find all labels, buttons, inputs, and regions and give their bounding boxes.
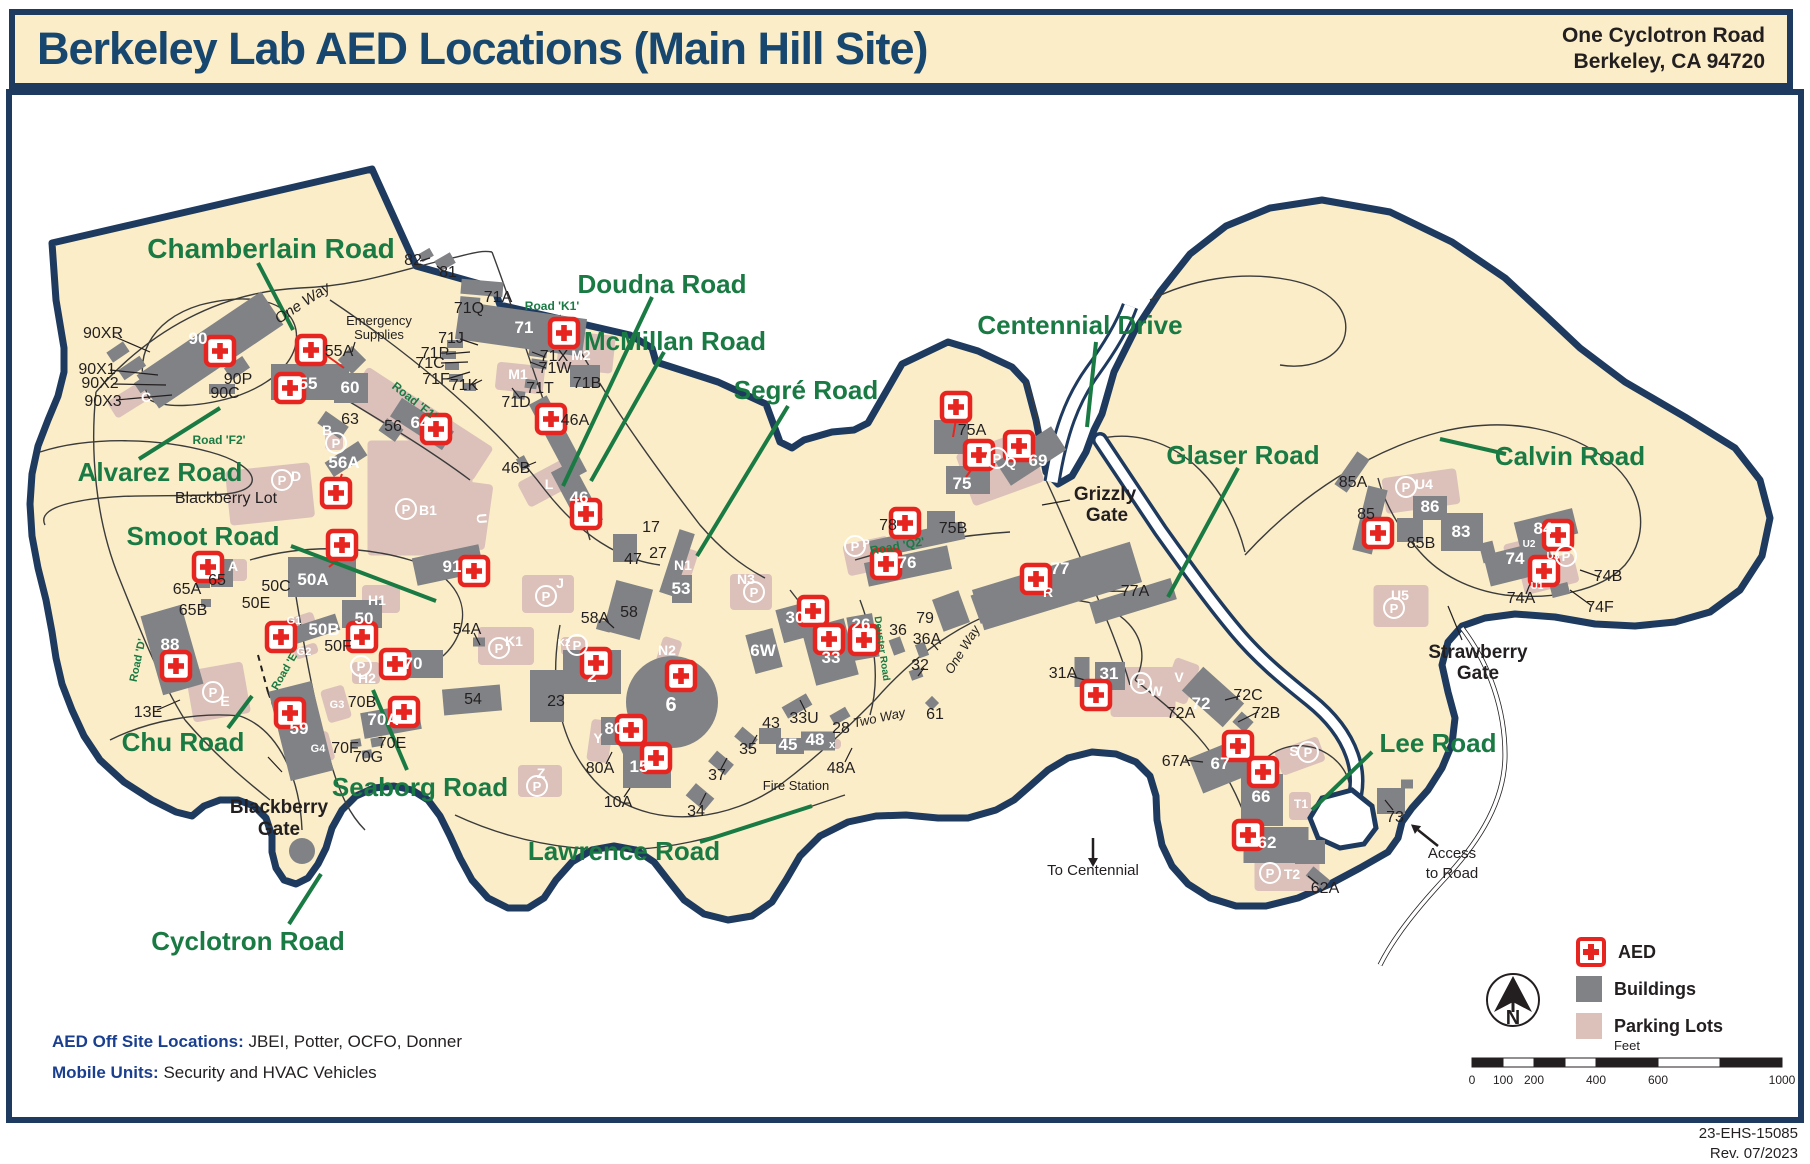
building-swatch-icon (1576, 976, 1602, 1002)
footnotes: AED Off Site Locations: JBEI, Potter, OC… (52, 1032, 462, 1094)
building-number: 50 (355, 609, 374, 628)
building-number: 50A (297, 570, 328, 589)
building (1401, 780, 1413, 789)
legend-item-parking: Parking Lots (1576, 1012, 1723, 1040)
building-number: 74 (1506, 549, 1525, 568)
aed-marker (162, 652, 190, 680)
building-number: 23 (547, 693, 565, 710)
scale-bar-segment (1534, 1058, 1565, 1067)
building-number: 31A (1049, 665, 1078, 682)
parking-lot-label: N1 (674, 557, 692, 573)
building-number: 59 (290, 719, 309, 738)
building-number: 72B (1252, 705, 1280, 722)
legend-item-buildings: Buildings (1576, 975, 1723, 1003)
map-annotation: Emergency (346, 313, 412, 328)
building-number: 2 (587, 667, 596, 686)
building-number: 46A (561, 412, 590, 429)
road-name-label: Alvarez Road (78, 457, 243, 487)
building-number: 6 (665, 694, 676, 716)
parking-p-icon: P (1402, 480, 1411, 495)
building-number: 69 (1029, 451, 1048, 470)
aed-map-page: 90556064714656A9150A50B5088597070A261580… (0, 0, 1810, 1164)
aed-marker (322, 479, 350, 507)
mobile-units-label: Mobile Units: (52, 1063, 159, 1082)
parking-lot-label: H1 (368, 592, 386, 608)
document-info: 23-EHS-15085 Rev. 07/2023 (1699, 1124, 1798, 1163)
map-annotation: to Road (1426, 865, 1479, 882)
building-number: 50C (261, 578, 290, 595)
page-title: Berkeley Lab AED Locations (Main Hill Si… (37, 23, 928, 75)
building-number: 32 (911, 657, 929, 674)
mobile-units-note: Mobile Units: Security and HVAC Vehicles (52, 1063, 462, 1083)
building-number: 85 (1357, 506, 1375, 523)
parking-p-icon: P (1562, 549, 1571, 564)
parking-p-icon: P (1266, 866, 1275, 881)
building-number: 67A (1162, 753, 1191, 770)
scale-bar-segment (1720, 1058, 1782, 1067)
building-number: 34 (687, 803, 705, 820)
parking-lot-label: K1 (505, 633, 523, 649)
building-number: 60 (341, 378, 360, 397)
gate-label: Strawberry (1428, 642, 1528, 663)
offsite-note-text: JBEI, Potter, OCFO, Donner (244, 1032, 462, 1051)
doc-revision: Rev. 07/2023 (1699, 1144, 1798, 1164)
building-number: 71 (515, 318, 534, 337)
parking-p-icon: P (495, 641, 504, 656)
parking-lot-label: B (322, 422, 332, 438)
parking-lot-label: S (1289, 743, 1298, 759)
building-number: 71F (422, 371, 450, 388)
road-name-label: Calvin Road (1495, 441, 1645, 471)
parking-p-icon: P (209, 685, 218, 700)
aed-marker (550, 319, 578, 347)
parking-lot-label: U3 (1547, 551, 1560, 562)
building-number: 91 (443, 557, 462, 576)
parking-p-icon: P (1304, 745, 1313, 760)
building-number: 70G (353, 749, 383, 766)
gate-label: Grizzly (1074, 484, 1137, 505)
scale-bar-segment (1565, 1058, 1596, 1067)
aed-icon (1576, 937, 1606, 967)
building-number: 90X2 (81, 375, 118, 392)
building-number: 71W (539, 360, 573, 377)
scale-tick-label: 200 (1524, 1073, 1544, 1087)
building-number: 74A (1507, 590, 1536, 607)
building-number: 65 (208, 572, 226, 589)
parking-lot-label: G4 (311, 743, 327, 755)
parking-lot-label: R (1043, 584, 1053, 600)
road-name-label: Lawrence Road (528, 836, 720, 866)
aed-marker (206, 337, 234, 365)
building-number: 13E (134, 704, 162, 721)
gate-label: Blackberry (230, 797, 329, 818)
building-number: 83 (1452, 522, 1471, 541)
building-number: 70 (404, 654, 423, 673)
building-number: 63 (341, 411, 359, 428)
building-number: 56 (384, 418, 402, 435)
building-number: 80 (605, 719, 624, 738)
parking-p-icon: P (573, 638, 582, 653)
parking-p-icon: P (1137, 676, 1146, 691)
parking-lot-label: J (556, 575, 564, 591)
parking-lot-label: N3 (737, 571, 755, 587)
building-number: 70B (348, 694, 376, 711)
building-number: 71T (526, 380, 554, 397)
building-number: 90XR (83, 325, 123, 342)
parking-lot-label: T2 (1284, 866, 1301, 882)
building-number: 50E (242, 595, 270, 612)
scale-tick-label: 1000 (1769, 1073, 1796, 1087)
building-number: 65A (173, 581, 202, 598)
building-number: 54 (464, 691, 482, 708)
scale-tick-label: 600 (1648, 1073, 1668, 1087)
road-name-label: Chamberlain Road (147, 233, 394, 264)
building-number: 82 (404, 252, 422, 269)
parking-lot-label: L (545, 476, 554, 492)
road-name-label: Cyclotron Road (151, 926, 345, 956)
parking-lot-label: U2 (1523, 539, 1536, 550)
building-number: 46 (570, 488, 589, 507)
parking-swatch-icon (1576, 1013, 1602, 1039)
building-number: 17 (642, 519, 660, 536)
parking-lot-label: Q (1006, 454, 1017, 470)
mobile-units-text: Security and HVAC Vehicles (159, 1063, 377, 1082)
aed-marker (1364, 519, 1392, 547)
road-name-label: McMillan Road (584, 326, 766, 356)
north-label: N (1506, 1007, 1520, 1029)
map-annotation: Access (1428, 845, 1476, 862)
parking-lot-label: U5 (1391, 587, 1409, 603)
parking-lot-label: U (474, 513, 491, 524)
parking-lot-label: A (228, 558, 238, 574)
building (1295, 840, 1325, 864)
aed-marker (267, 623, 295, 651)
scale-tick-label: 400 (1586, 1073, 1606, 1087)
building-number: 77 (1051, 559, 1070, 578)
parking-p-icon: P (533, 779, 542, 794)
building-number: 48 (806, 730, 825, 749)
aed-marker (297, 336, 325, 364)
parking-p-icon: P (993, 451, 1002, 466)
scale-bar-segment (1596, 1058, 1658, 1067)
site-address: One Cyclotron Road Berkeley, CA 94720 (1562, 23, 1765, 76)
building-number: 54A (453, 621, 482, 638)
building-number: 90C (210, 385, 239, 402)
building-number: 67 (1211, 754, 1230, 773)
building-number: 62 (1258, 833, 1277, 852)
parking-lot-label: M1 (508, 366, 528, 382)
campus-map: 90556064714656A9150A50B5088597070A261580… (0, 0, 1810, 1164)
aed-marker (1082, 681, 1110, 709)
building-number: 33 (822, 648, 841, 667)
building-number: 30 (786, 608, 805, 627)
building-number: 36A (913, 631, 942, 648)
parking-lot-label: U4 (1415, 476, 1433, 492)
building-number: 65B (179, 602, 207, 619)
parking-lot-label: T1 (1294, 797, 1308, 811)
parking-lot-label: G1 (287, 615, 302, 627)
aed-marker (1249, 758, 1277, 786)
building-number: 35 (739, 741, 757, 758)
building-number: 71C (415, 355, 444, 372)
gate-label: Gate (258, 819, 300, 840)
building-number: 88 (161, 635, 180, 654)
parking-p-icon: P (1390, 601, 1399, 616)
scale-bar-segment (1658, 1058, 1720, 1067)
parking-lot-label: N2 (658, 642, 676, 658)
road-name-label: Lee Road (1379, 728, 1496, 758)
building-number: 58 (620, 604, 638, 621)
legend-label: AED (1618, 942, 1656, 963)
building-number: 55A (325, 343, 354, 360)
parking-lot-label: G3 (330, 699, 345, 711)
parking-p-icon: P (750, 585, 759, 600)
parking-lot-label: K2 (558, 638, 571, 649)
building-number: 61 (926, 706, 944, 723)
map-annotation: Fire Station (763, 778, 829, 793)
map-annotation: Blackberry Lot (175, 490, 278, 507)
parking-lot-label: C (141, 389, 151, 405)
legend-label: Buildings (1614, 979, 1696, 1000)
aed-marker (942, 393, 970, 421)
building-number: 66 (1252, 787, 1271, 806)
gate-label: Gate (1086, 505, 1128, 526)
aed-marker (667, 662, 695, 690)
building-number: 75B (939, 520, 967, 537)
building-number: 70A (367, 710, 398, 729)
building-number: 71K (450, 377, 479, 394)
parking-lot-label: x (829, 739, 836, 751)
offsite-note-label: AED Off Site Locations: (52, 1032, 244, 1051)
building-number: 80A (586, 760, 615, 777)
road-name-label: Smoot Road (126, 521, 279, 551)
aed-marker (328, 531, 356, 559)
road-name-small: Road 'K1' (525, 299, 580, 313)
coastline-notch (1310, 790, 1376, 848)
building-round (289, 838, 315, 864)
building-number: 62A (1311, 880, 1340, 897)
road-name-label: Glaser Road (1166, 440, 1319, 470)
parking-lot-label: E (220, 693, 229, 709)
building-number: 26 (852, 615, 871, 634)
building-number: 28 (832, 720, 850, 737)
building-number: 79 (916, 610, 934, 627)
building-number: 71A (484, 289, 513, 306)
building-number: 36 (889, 622, 907, 639)
aed-marker (460, 557, 488, 585)
building-number: 56A (328, 453, 359, 472)
building-number: 72C (1233, 687, 1262, 704)
legend: AED Buildings Parking Lots (1576, 938, 1723, 1049)
parking-lot-label: U1 (1531, 581, 1544, 592)
building-number: 37 (708, 767, 726, 784)
address-line-1: One Cyclotron Road (1562, 23, 1765, 49)
parking-p-icon: P (278, 473, 287, 488)
direction-arrow (1418, 830, 1438, 846)
doc-number: 23-EHS-15085 (1699, 1124, 1798, 1144)
building-number: 31 (1100, 664, 1119, 683)
parking-lot-label: Z (537, 765, 546, 781)
parking-lot-label: B1 (419, 502, 437, 518)
building-number: 90 (189, 329, 208, 348)
parking-p-icon: P (851, 539, 860, 554)
gate-label: Gate (1457, 663, 1499, 684)
building-number: 90X3 (84, 393, 121, 410)
building-number: 48A (827, 760, 856, 777)
scale-bar-segment (1472, 1058, 1503, 1067)
road-name-small: Road 'F2' (192, 433, 245, 447)
building-number: 74B (1594, 568, 1622, 585)
building-number: 50F (324, 638, 352, 655)
road-name-label: Chu Road (122, 727, 245, 757)
parking-lot-label: H2 (358, 670, 376, 686)
building-number: 15 (630, 757, 649, 776)
parking-lot-label: Y (593, 730, 603, 746)
offsite-note: AED Off Site Locations: JBEI, Potter, OC… (52, 1032, 462, 1052)
building-number: 76 (898, 553, 917, 572)
legend-label: Parking Lots (1614, 1016, 1723, 1037)
building-number: 27 (649, 545, 667, 562)
scale-tick-label: 0 (1469, 1073, 1476, 1087)
address-line-2: Berkeley, CA 94720 (1562, 49, 1765, 75)
road-name-label: Segré Road (734, 375, 879, 405)
building-number: 58A (581, 610, 610, 627)
map-annotation: Supplies (354, 327, 404, 342)
building-number: 71Q (454, 300, 484, 317)
parking-lot-label: V (1174, 669, 1184, 685)
building-number: 43 (762, 715, 780, 732)
building-number: 74F (1586, 599, 1614, 616)
road-name-label: Seaborg Road (332, 772, 508, 802)
building-number: 84 (1534, 519, 1553, 538)
building-number: 75 (953, 474, 972, 493)
parking-p-icon: P (542, 589, 551, 604)
parking-p-icon: P (402, 502, 411, 517)
building-number: 86 (1421, 497, 1440, 516)
header-bar: Berkeley Lab AED Locations (Main Hill Si… (9, 9, 1793, 89)
building-number: 46B (502, 460, 530, 477)
building-number: 45 (779, 735, 798, 754)
parking-lot-label: D (291, 468, 301, 484)
building-number: 81 (439, 264, 457, 281)
building-number: 85B (1407, 535, 1435, 552)
building-number: 53 (672, 579, 691, 598)
building-number: 77A (1121, 583, 1150, 600)
building-number: 47 (624, 551, 642, 568)
building-number: 55 (299, 374, 318, 393)
scale-bar-segment (1503, 1058, 1534, 1067)
parking-p-icon: P (332, 436, 341, 451)
building-number: 50B (308, 620, 339, 639)
legend-item-aed: AED (1576, 938, 1723, 966)
parking-lot-label: W (1149, 683, 1163, 699)
building-number: 72A (1167, 705, 1196, 722)
building-number: 85A (1339, 474, 1368, 491)
road-name-label: Centennial Drive (977, 310, 1182, 340)
building-number: 6W (750, 641, 776, 660)
building-number: 75A (958, 422, 987, 439)
building-number: 33U (789, 710, 818, 727)
building-number: 73 (1386, 809, 1404, 826)
scale-tick-label: 100 (1493, 1073, 1513, 1087)
road-name-label: Doudna Road (578, 269, 747, 299)
building-number: 10A (604, 794, 633, 811)
building-number: 78 (879, 517, 897, 534)
building-number: 71B (573, 375, 601, 392)
